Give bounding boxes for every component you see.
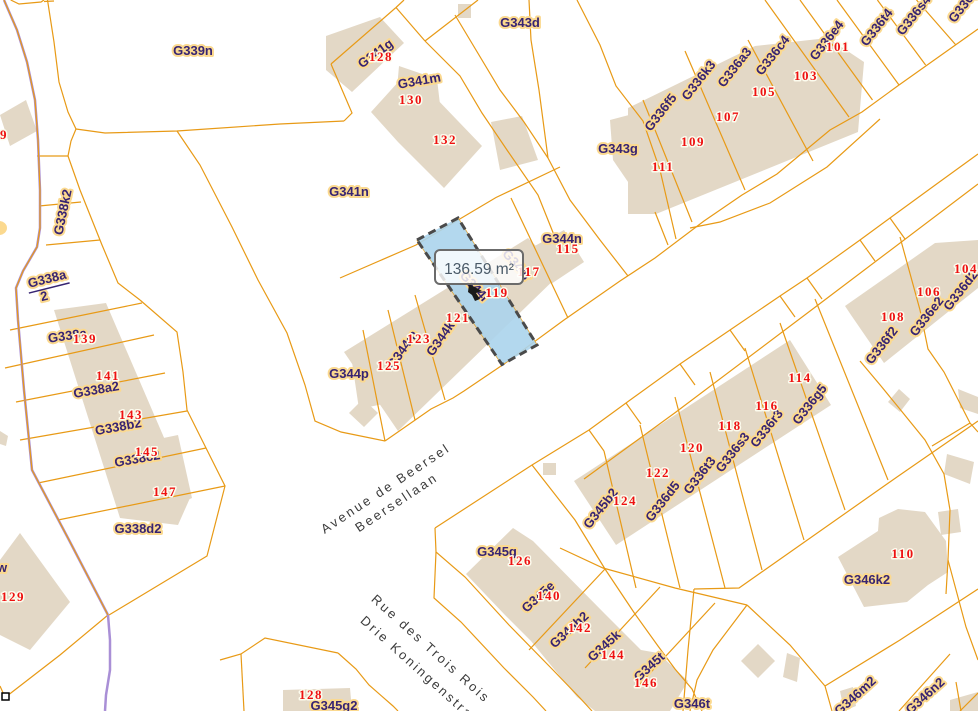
svg-text:G343d: G343d (500, 15, 540, 30)
svg-text:107: 107 (716, 109, 740, 124)
svg-text:146: 146 (634, 675, 658, 690)
svg-text:130: 130 (399, 92, 423, 107)
svg-text:G346t: G346t (674, 696, 711, 711)
svg-text:103: 103 (794, 68, 818, 83)
svg-text:140: 140 (537, 588, 561, 603)
svg-text:132: 132 (433, 132, 457, 147)
svg-text:G339n: G339n (173, 43, 213, 58)
svg-text:106: 106 (917, 284, 941, 299)
svg-text:109: 109 (681, 134, 705, 149)
svg-text:145: 145 (135, 444, 159, 459)
svg-text:124: 124 (613, 493, 637, 508)
svg-text:136.59 m²: 136.59 m² (444, 261, 514, 278)
svg-text:122: 122 (646, 465, 670, 480)
svg-text:G341n: G341n (329, 184, 369, 199)
svg-text:144: 144 (601, 647, 625, 662)
svg-text:105: 105 (752, 84, 776, 99)
svg-text:114: 114 (788, 370, 811, 385)
svg-text:116: 116 (755, 398, 778, 413)
svg-text:143: 143 (119, 407, 143, 422)
svg-text:118: 118 (718, 418, 741, 433)
svg-text:101: 101 (826, 39, 850, 54)
svg-text:104: 104 (954, 261, 978, 276)
svg-text:123: 123 (407, 331, 431, 346)
svg-text:128: 128 (299, 687, 323, 702)
svg-text:128: 128 (369, 49, 393, 64)
svg-text:108: 108 (881, 309, 905, 324)
svg-text:129: 129 (1, 589, 25, 604)
svg-text:139: 139 (73, 331, 97, 346)
svg-text:120: 120 (680, 440, 704, 455)
svg-text:G346k2: G346k2 (844, 572, 890, 587)
svg-text:147: 147 (153, 484, 177, 499)
svg-text:w: w (0, 560, 8, 575)
svg-text:111: 111 (652, 159, 675, 174)
svg-text:110: 110 (891, 546, 914, 561)
svg-text:119: 119 (485, 285, 508, 300)
svg-text:G343g: G343g (598, 141, 638, 156)
svg-text:115: 115 (556, 241, 579, 256)
svg-text:G338d2: G338d2 (115, 521, 162, 536)
svg-text:141: 141 (96, 368, 120, 383)
svg-text:125: 125 (377, 358, 401, 373)
svg-text:121: 121 (446, 310, 470, 325)
svg-text:G344p: G344p (329, 366, 369, 381)
svg-text:142: 142 (568, 620, 592, 635)
svg-text:9: 9 (0, 127, 8, 142)
svg-text:126: 126 (508, 553, 532, 568)
